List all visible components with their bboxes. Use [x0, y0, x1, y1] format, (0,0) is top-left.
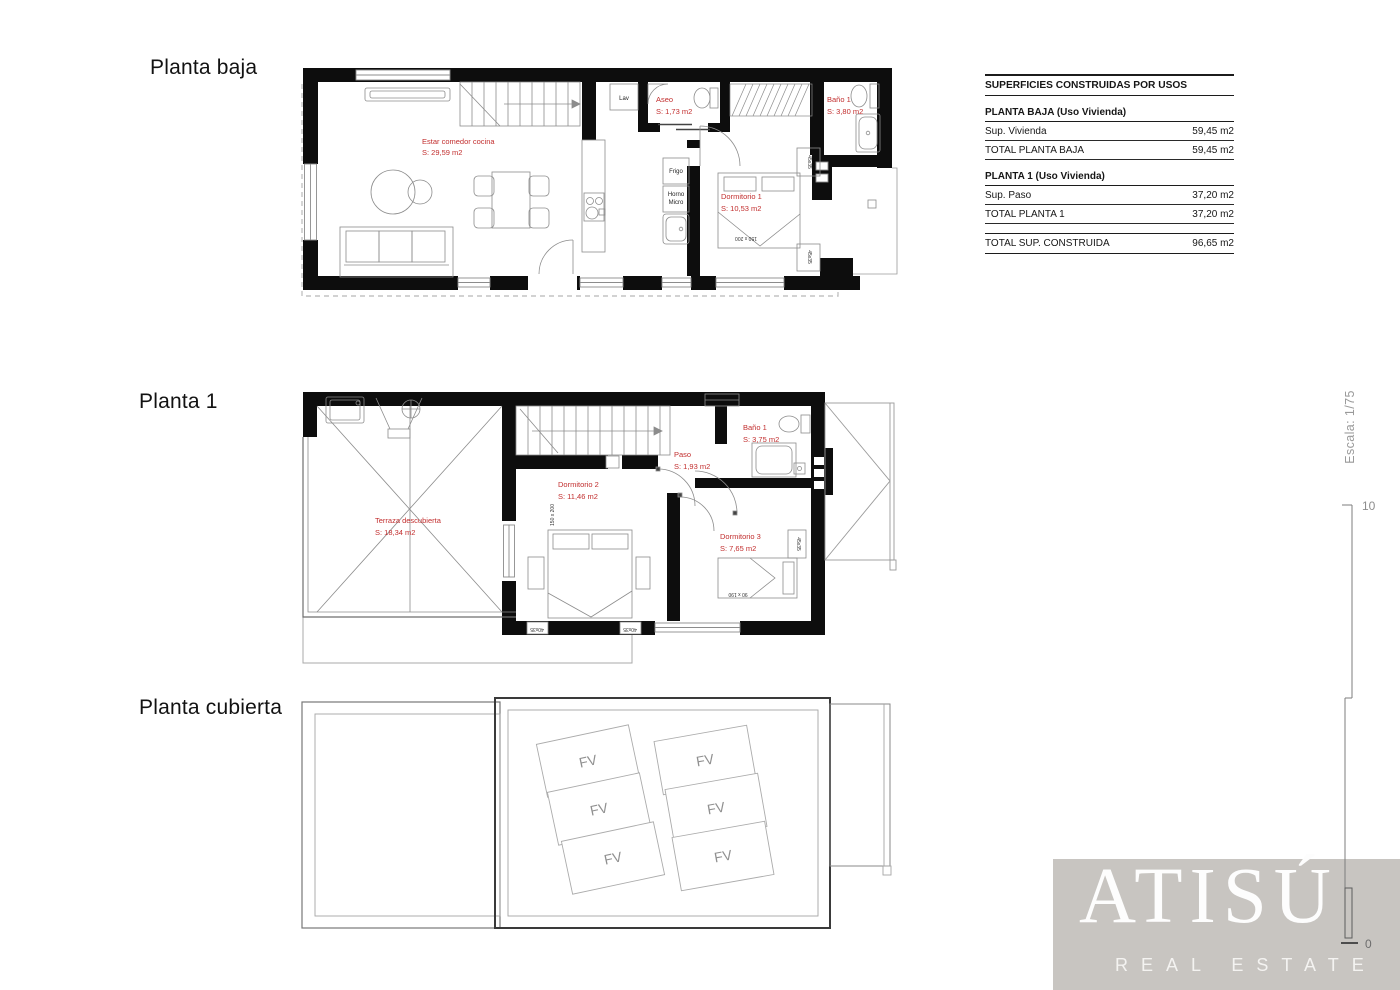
table-total-row: TOTAL SUP. CONSTRUIDA 96,65 m2: [985, 233, 1234, 254]
bed3-size-tag: 90 x 190: [728, 591, 747, 597]
row-value: 59,45 m2: [1192, 145, 1234, 156]
fv-panel-label: FV: [695, 750, 716, 769]
row-label: TOTAL PLANTA 1: [985, 209, 1065, 220]
scale-label: Escala: 1/75: [1343, 377, 1357, 477]
row-value: 37,20 m2: [1192, 190, 1234, 201]
stairs: [460, 82, 580, 126]
room-area: S: 7,65 m2: [720, 544, 756, 553]
room-area: S: 3,75 m2: [743, 435, 779, 444]
row-label: Sup. Vivienda: [985, 126, 1047, 137]
room-label: Baño 1: [743, 423, 767, 432]
bed-size-tag: 150 x 200: [550, 504, 556, 526]
micro-tag: Micro: [669, 200, 684, 206]
bedroom2-furniture: [527, 530, 650, 634]
room-label: Dormitorio 1: [721, 192, 762, 201]
floor-plan-roof: FV FV FV FV FV FV: [295, 690, 905, 935]
brand-name: ATISÚ: [1079, 852, 1338, 942]
room-label: Aseo: [656, 95, 673, 104]
plan-sheet: Planta baja Planta 1 Planta cubierta: [0, 0, 1400, 990]
living-furniture: [340, 88, 549, 277]
room-area: S: 3,80 m2: [827, 107, 863, 116]
room-area: S: 29,59 m2: [422, 148, 462, 157]
table-row: Sup. Paso 37,20 m2: [985, 186, 1234, 205]
scale-ruler: 10 0: [1338, 495, 1393, 960]
total-label: TOTAL SUP. CONSTRUIDA: [985, 238, 1110, 249]
nightstand-tag: 45x35: [806, 250, 812, 264]
room-label: Dormitorio 3: [720, 532, 761, 541]
total-value: 96,65 m2: [1192, 238, 1234, 249]
nightstand-tag: 45x35: [795, 537, 801, 551]
row-value: 37,20 m2: [1192, 209, 1234, 220]
row-label: Sup. Paso: [985, 190, 1031, 201]
room-label: Terraza descubierta: [375, 516, 442, 525]
room-area: S: 10,53 m2: [721, 204, 761, 213]
wardrobe: [730, 84, 812, 116]
row-value: 59,45 m2: [1192, 126, 1234, 137]
title-planta-baja: Planta baja: [150, 56, 257, 80]
nightstand-tag: 40x35: [530, 626, 544, 632]
room-area: S: 18,34 m2: [375, 528, 415, 537]
doors: [539, 126, 740, 274]
room-label: Paso: [674, 450, 691, 459]
areas-table-title: SUPERFICIES CONSTRUIDAS POR USOS: [985, 74, 1234, 96]
windows: [305, 70, 829, 287]
fv-panel-label: FV: [713, 846, 734, 865]
floor-plan-ground: Estar comedor cocina S: 29,59 m2 Aseo S:…: [300, 60, 900, 305]
solar-panels: FV FV FV FV FV FV: [536, 725, 774, 894]
oven-tag: Horno: [668, 192, 685, 198]
table-row: Sup. Vivienda 59,45 m2: [985, 122, 1234, 141]
roof-outline-right: [825, 403, 896, 570]
section-heading: PLANTA BAJA (Uso Vivienda): [985, 105, 1234, 122]
room-label: Dormitorio 2: [558, 480, 599, 489]
laundry-tag: Lav: [619, 96, 629, 102]
fridge-tag: Frigo: [669, 169, 683, 175]
table-row: TOTAL PLANTA 1 37,20 m2: [985, 205, 1234, 224]
room-area: S: 1,73 m2: [656, 107, 692, 116]
section-heading: PLANTA 1 (Uso Vivienda): [985, 169, 1234, 186]
bed-size-tag: 150 x 200: [735, 235, 757, 241]
table-row: TOTAL PLANTA BAJA 59,45 m2: [985, 141, 1234, 160]
fv-panel-label: FV: [706, 798, 727, 817]
ruler-top-label: 10: [1362, 499, 1376, 513]
windows: [504, 525, 741, 632]
room-area: S: 1,93 m2: [674, 462, 710, 471]
room-label: Baño 1: [827, 95, 851, 104]
shaft-slots: [814, 457, 824, 489]
title-planta-cubierta: Planta cubierta: [139, 696, 282, 720]
nightstand-tag: 45x35: [806, 155, 812, 169]
title-planta-1: Planta 1: [139, 390, 218, 414]
floor-plan-first: Terraza descubierta S: 18,34 m2 Dormitor…: [300, 385, 900, 670]
room-area: S: 11,46 m2: [558, 492, 598, 501]
row-label: TOTAL PLANTA BAJA: [985, 145, 1084, 156]
areas-table: SUPERFICIES CONSTRUIDAS POR USOS PLANTA …: [985, 74, 1234, 254]
nightstand-tag: 40x35: [623, 626, 637, 632]
room-label: Estar comedor cocina: [422, 137, 495, 146]
ruler-bottom-label: 0: [1365, 937, 1372, 951]
